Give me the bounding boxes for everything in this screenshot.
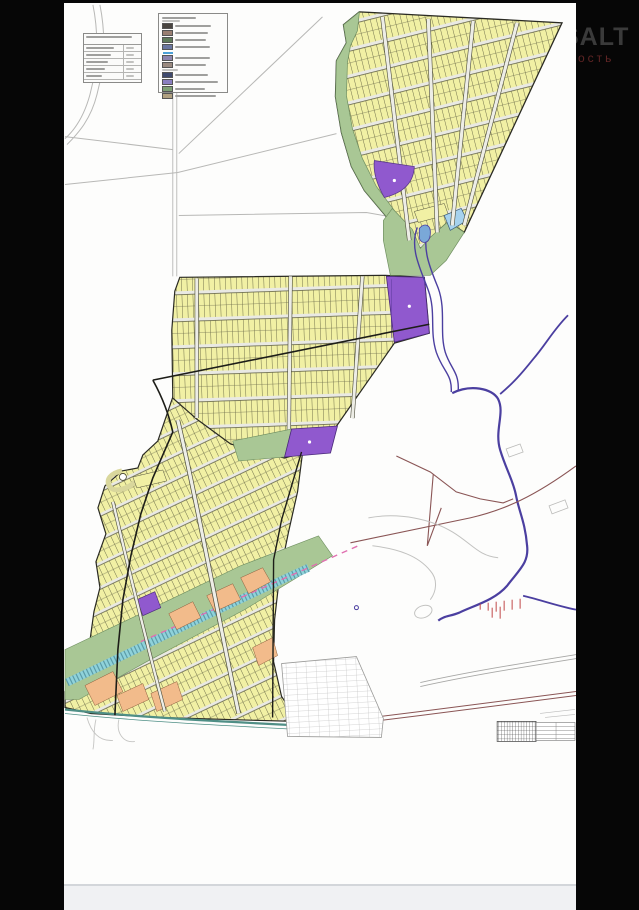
viewer-bottom-strip (64, 884, 576, 910)
info-table-row (84, 59, 141, 66)
legend-item (162, 55, 224, 61)
legend-swatch (162, 23, 173, 29)
legend-label (175, 25, 211, 27)
legend-item (162, 93, 224, 99)
map-photo[interactable] (64, 3, 576, 884)
watermark-line2: ость (578, 50, 639, 66)
legend-swatch (162, 44, 173, 50)
legend-label (175, 88, 205, 90)
legend-label (175, 81, 218, 83)
info-table-row (84, 66, 141, 73)
legend-item (162, 72, 224, 78)
legend-group-heading (162, 69, 178, 71)
legend-title (162, 17, 196, 19)
legend-item (162, 37, 224, 43)
info-table-row (84, 73, 141, 80)
legend-label (175, 95, 216, 97)
watermark-line1: SALT (576, 24, 639, 50)
legend-item (162, 44, 224, 50)
legend (158, 13, 228, 93)
legend-line-symbol (163, 52, 173, 54)
unfilled-grid-block (282, 657, 384, 738)
legend-swatch (162, 30, 173, 36)
interchange-lines-gray (368, 444, 568, 620)
map-canvas (64, 3, 576, 884)
stamp-block (497, 709, 575, 741)
legend-label (175, 64, 206, 66)
legend-item (162, 79, 224, 85)
legend-swatch (162, 93, 173, 99)
legend-item (162, 23, 224, 29)
watermark: SALT ость (576, 24, 639, 82)
legend-swatch (162, 55, 173, 61)
legend-label (175, 74, 208, 76)
legend-label (175, 32, 208, 34)
info-table-header (84, 34, 141, 45)
boundary-lines-brown (350, 456, 576, 546)
contour-lines (87, 717, 135, 749)
legend-item (162, 62, 224, 68)
info-table-row (84, 45, 141, 52)
legend-swatch (162, 86, 173, 92)
legend-label (175, 46, 210, 48)
legend-swatch (162, 79, 173, 85)
legend-swatch (162, 62, 173, 68)
legend-item (162, 86, 224, 92)
legend-item (162, 30, 224, 36)
info-table-row (84, 52, 141, 59)
info-table (83, 33, 142, 83)
viewer-background: SALT ость (0, 0, 639, 910)
north-parcel-cluster (335, 12, 562, 275)
legend-label (175, 39, 206, 41)
legend-swatch (162, 37, 173, 43)
legend-swatch (162, 72, 173, 78)
legend-label (175, 57, 210, 59)
